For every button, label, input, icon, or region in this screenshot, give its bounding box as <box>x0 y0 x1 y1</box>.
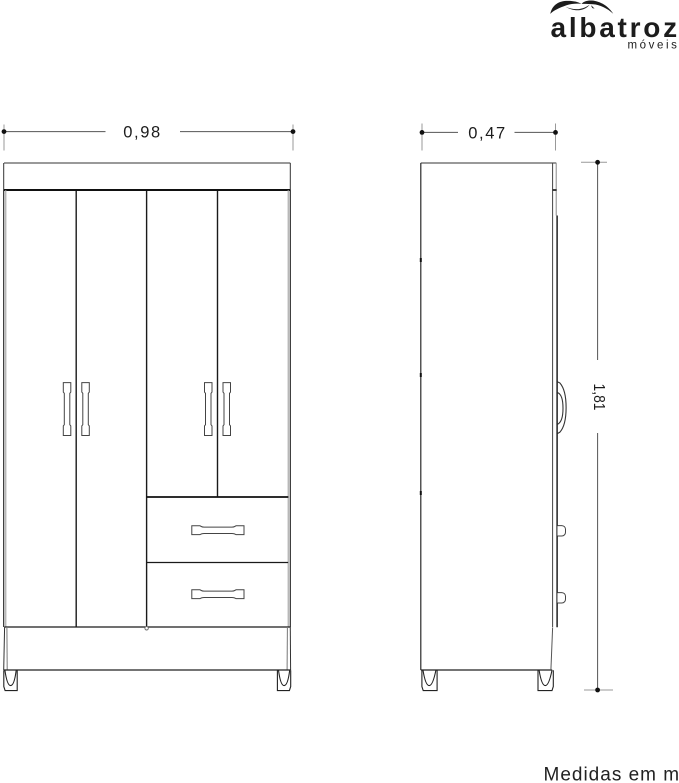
svg-text:1,81: 1,81 <box>590 384 607 411</box>
svg-text:0,47: 0,47 <box>468 124 507 142</box>
svg-text:albatroz: albatroz <box>551 12 679 43</box>
svg-text:móveis: móveis <box>627 40 679 52</box>
svg-text:0,98: 0,98 <box>123 124 162 142</box>
svg-text:Medidas em m: Medidas em m <box>544 765 679 783</box>
